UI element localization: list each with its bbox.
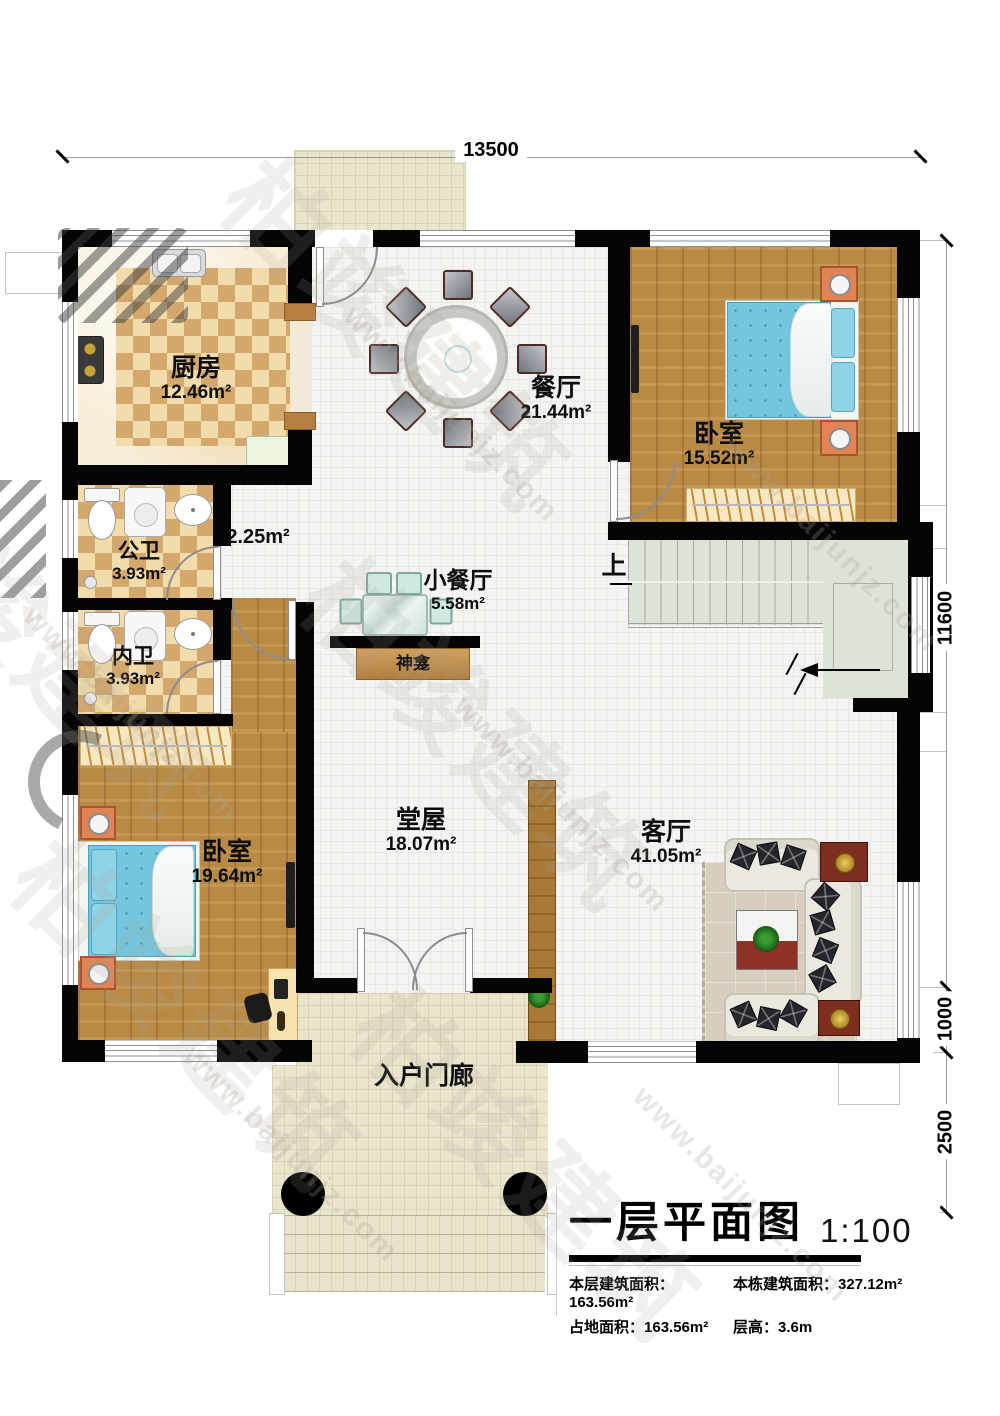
outside-pad-top-left [5,252,63,294]
bedroom1-nightstand-top [820,266,858,302]
small-dining-chair [366,572,392,595]
desk-lamp [277,1011,285,1031]
kitchen-sink [152,249,206,277]
porch-column-right [503,1172,547,1216]
window-top-dining [420,230,575,247]
wall-right-1 [897,230,920,298]
wall-hall-bottom-right [470,978,552,993]
stair-start-line [610,583,632,585]
window-left-kitchen [62,302,78,422]
bedroom2-nightstand-top [80,806,116,840]
plan-scale: 1:100 [820,1212,913,1250]
bedroom2-pillow [91,903,117,955]
bedroom1-nightstand-bottom [820,420,858,456]
wall-right-3 [897,712,920,882]
window-stair-bump [911,577,930,673]
dim-label-top: 13500 [455,139,527,162]
shrine-console: 神龛 [356,648,470,680]
window-top-kitchen [112,230,250,247]
dim-label-right-total: 11600 [935,585,958,652]
wall-bottom-right-1 [516,1041,588,1063]
side-table-bottom-right [818,1000,860,1036]
stairs-up-label: 上 [601,552,626,580]
kitchen-door-opening [290,319,312,412]
desk-items [274,979,288,999]
room-label-small-dining: 小餐厅5.58m² [424,568,493,613]
room-label-inner-bath: 内卫3.93m² [106,645,160,688]
sofa-pillow [756,841,780,865]
wall-bath2-right [213,610,231,660]
wall-bottom-right-2 [696,1041,920,1063]
entry-top-door-gap [315,230,373,247]
wall-top-4 [575,230,650,247]
title-block: 一层平面图 1:100 本层建筑面积：163.56m² 本栋建筑面积：327.1… [556,1186,940,1316]
room-label-living: 客厅41.05m² [631,818,702,867]
wall-top-2 [250,230,315,247]
stat-storey-height: 层高：3.6m [733,1316,940,1337]
bedroom2-sheet [152,846,194,956]
bedroom2-nightstand-bottom [80,956,116,990]
porch-step-rail-left [269,1213,285,1295]
wall-bedroom2-right [296,602,314,992]
kitchen-sink-basin-left [157,254,178,273]
wall-bottom-left-2 [217,1040,312,1062]
stair-bump-bottom-wall [853,698,933,712]
dim-conn [920,987,946,988]
bedroom2-tv [286,862,295,928]
wall-bottom-left-1 [62,1040,105,1062]
stat-building-area: 本栋建筑面积：327.12m² [733,1273,940,1311]
bath2-drain [84,692,97,705]
bedroom1-tv [631,325,639,393]
window-left-bath2 [62,612,78,670]
title-rule [569,1255,861,1262]
stair-landing-outline [833,583,893,671]
wall-left-4 [62,670,78,795]
dining-chair [443,418,473,448]
logo-hatch-left [0,480,46,598]
room-label-porch: 入户门廊 [374,1062,474,1090]
wall-top-3 [373,230,420,247]
bedroom1-sheet [790,303,832,417]
bedroom1-pillow [831,362,855,412]
top-porch-floor [294,150,466,234]
porch-steps [283,1215,545,1292]
stat-footprint-area: 占地面积：163.56m² [569,1316,733,1337]
room-label-bedroom-bottom: 卧室19.64m² [192,838,263,887]
bath1-washer [124,487,166,537]
coffee-table-plant [753,926,779,952]
wall-kitchen-right-top [288,247,312,307]
wall-shrine [330,636,480,648]
bath1-toilet-bowl [88,500,116,540]
stair-arrow-line [818,669,880,671]
bedroom2-pillow [91,849,117,901]
window-right-living [897,882,920,1038]
stair-edge-line2 [628,627,823,628]
wall-left-2 [62,422,78,500]
room-label-bedroom-top: 卧室15.52m² [684,420,755,469]
title-thin-rule [569,1265,861,1266]
plan-title: 一层平面图 [569,1188,804,1250]
kitchen-sink-basin-right [180,254,201,273]
wall-bedroom1-bottom [608,522,933,540]
stair-rail-line [628,581,823,583]
wall-left-1 [62,230,78,302]
stair-edge-line1 [628,623,823,624]
wall-bedroom1-left [608,247,630,462]
room-label-kitchen: 厨房12.46m² [161,354,232,403]
title-stats: 本层建筑面积：163.56m² 本栋建筑面积：327.12m² 占地面积：163… [569,1273,940,1337]
wall-hall-bottom-left [296,978,358,993]
dim-conn [920,240,946,241]
window-left-bedroom [62,795,78,985]
bath1-sink [174,494,212,526]
sofa-pillow [756,1006,781,1031]
room-label-dining: 餐厅21.44m² [521,374,592,423]
dining-chair [369,344,399,374]
dim-label-right-porch: 1000 [935,992,958,1047]
stat-floor-area: 本层建筑面积：163.56m² [569,1273,733,1311]
wall-kitchen-right-bottom [288,428,312,485]
bedroom1-wardrobe [686,488,856,522]
window-left-bath1 [62,500,78,558]
kitchen-stove [76,336,104,384]
dining-chair [443,270,473,300]
window-bottom-bedroom [105,1040,217,1062]
side-table-top-right [820,842,868,882]
small-dining-chair [396,572,422,595]
kitchen-door-jamb-bottom [284,412,316,430]
porch-column-left [281,1172,325,1216]
room-label-public-bath: 公卫3.93m² [112,540,166,583]
wall-closet-divider [62,714,233,726]
window-top-bedroom [650,230,830,247]
small-dining-table [362,594,428,636]
bedroom1-pillow [831,308,855,358]
bedroom2-closet [80,726,232,766]
dining-table-center [444,345,472,373]
dim-label-right-steps: 2500 [935,1105,958,1160]
room-label-corridor: 2.25m² [226,526,289,548]
window-bottom-living [588,1041,696,1063]
small-dining-chair [340,599,363,625]
bath2-sink [174,618,212,650]
shrine-label: 神龛 [396,654,430,673]
dining-chair [517,344,547,374]
room-label-hall: 堂屋18.07m² [386,806,457,855]
floor-plan-canvas: 神龛 厨房12.46m² [0,0,1000,1416]
dim-line-right [946,240,947,1212]
outside-step-bottom-right [838,1063,900,1105]
kitchen-door-jamb-top [284,303,316,321]
wall-right-4 [897,1038,920,1063]
bath1-drain [84,576,97,589]
wall-kitchen-bottom [62,465,312,485]
bedroom2-desk [268,968,298,1044]
window-right-bedroom [897,298,920,432]
